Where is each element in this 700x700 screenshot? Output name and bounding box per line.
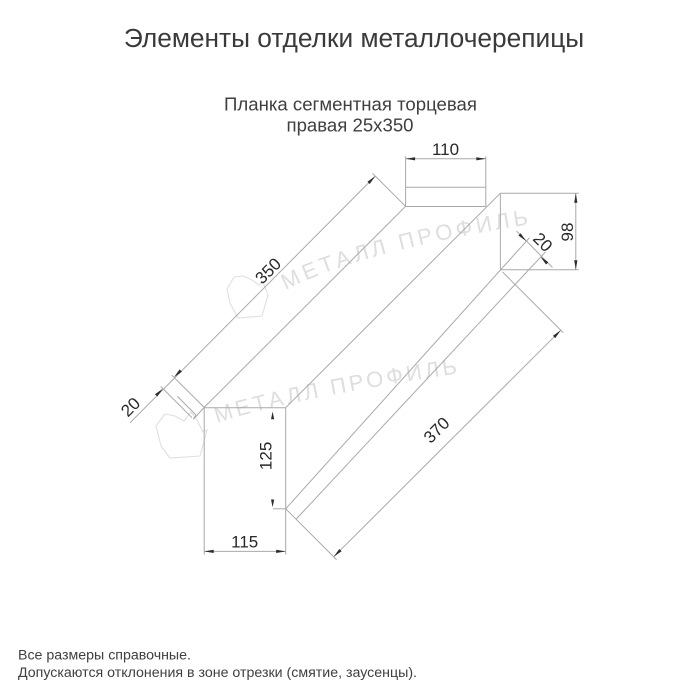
svg-text:правая 25х350: правая 25х350 — [287, 115, 414, 136]
svg-text:98: 98 — [558, 223, 577, 242]
svg-text:115: 115 — [231, 533, 258, 552]
svg-text:110: 110 — [432, 140, 459, 159]
svg-text:Планка сегментная торцевая: Планка сегментная торцевая — [224, 94, 477, 115]
svg-text:125: 125 — [256, 442, 275, 470]
svg-text:Элементы отделки металлочерепи: Элементы отделки металлочерепицы — [124, 23, 584, 53]
svg-text:Допускаются отклонения в зоне: Допускаются отклонения в зоне отрезки (с… — [18, 665, 417, 681]
svg-text:Все размеры справочные.: Все размеры справочные. — [18, 648, 191, 664]
